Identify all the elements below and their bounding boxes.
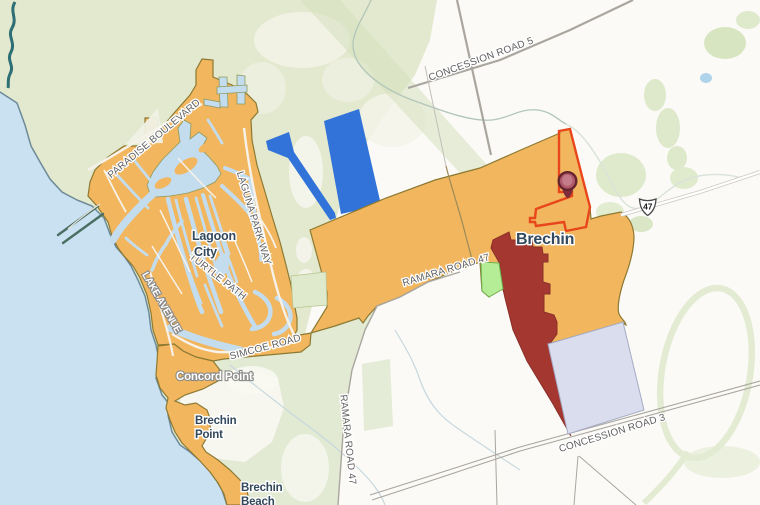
svg-text:47: 47 (643, 202, 653, 212)
svg-text:Brechin: Brechin (195, 415, 237, 427)
svg-text:Brechin: Brechin (241, 482, 283, 494)
svg-text:Lagoon: Lagoon (192, 229, 236, 243)
svg-text:Concord Point: Concord Point (176, 371, 253, 383)
svg-text:Brechin: Brechin (516, 231, 574, 248)
svg-text:Point: Point (195, 429, 223, 441)
svg-text:Beach: Beach (241, 496, 275, 505)
svg-text:City: City (194, 245, 217, 259)
